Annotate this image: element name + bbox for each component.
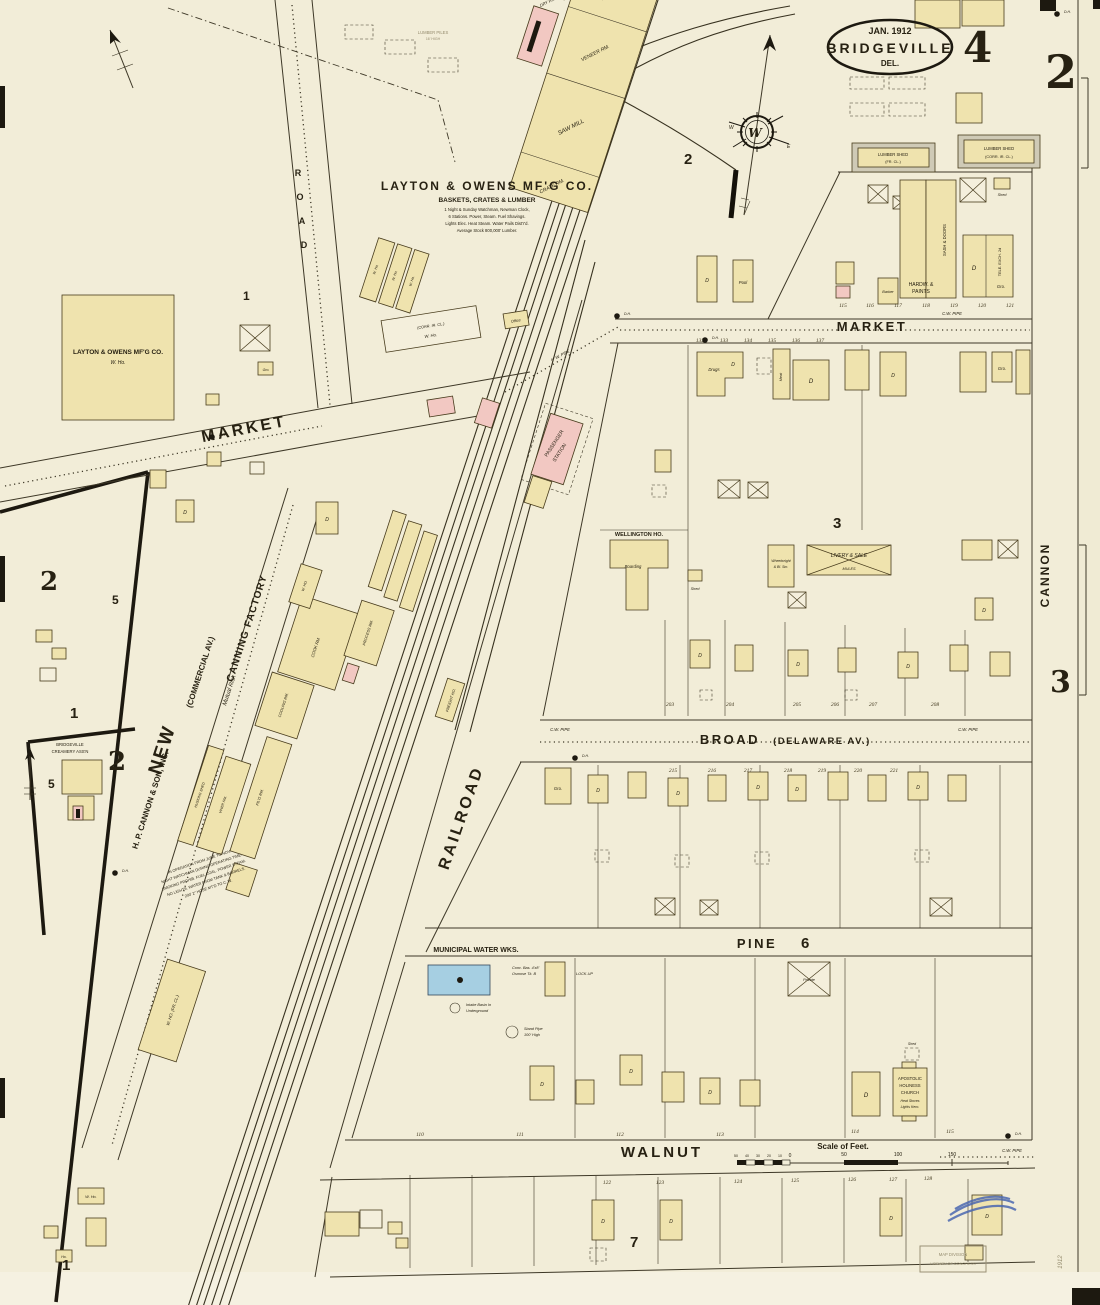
water-pipe-label: C.W. PIPE bbox=[942, 311, 962, 316]
water-note-conc: Conc. Bas. 4'x8' bbox=[512, 966, 539, 970]
lumber-piles-height: 16' HIGH bbox=[426, 37, 441, 41]
lumber-shed-b-label: LUMBER SHED bbox=[984, 146, 1014, 151]
hardware-label-1: HARDW. & bbox=[909, 282, 934, 288]
lot-number: 204 bbox=[726, 701, 735, 708]
shed-label: Shed bbox=[908, 1042, 917, 1046]
lot-number: 127 bbox=[889, 1177, 898, 1183]
lot-number: 110 bbox=[416, 1132, 424, 1138]
dwelling-label: D bbox=[889, 1216, 893, 1222]
lot-number: 133 bbox=[720, 338, 729, 344]
creamery-label-1: BRIDGEVILLE bbox=[56, 742, 84, 747]
map-canvas: LAYTON & OWENS MF'G CO. W. Ho. BASKET RM… bbox=[0, 0, 1100, 1305]
private-stable-label: Private bbox=[803, 978, 815, 982]
lot-number: 207 bbox=[869, 702, 878, 708]
church-label-3: CHURCH bbox=[901, 1090, 919, 1095]
standpipe-label-1: Stand Pipe bbox=[524, 1027, 543, 1031]
lot-number: 220 bbox=[854, 768, 863, 774]
sheet-number: 4 bbox=[963, 23, 992, 72]
lot-number: 122 bbox=[603, 1180, 612, 1186]
lot-number: 134 bbox=[744, 337, 753, 344]
dwelling-label: D bbox=[972, 266, 977, 272]
hardware-label-2: PAINTS bbox=[912, 289, 930, 295]
warehouse-label: W. Ho. bbox=[85, 1195, 96, 1199]
livery-mules-label: MULES bbox=[842, 567, 856, 571]
dwelling-label: D bbox=[864, 1093, 869, 1099]
sash-doors-label: SASH & DOORS bbox=[942, 224, 947, 256]
layton-warehouse-sub: W. Ho. bbox=[110, 360, 125, 366]
street-pine: PINE bbox=[737, 936, 777, 951]
ref-right: 3 bbox=[1050, 665, 1071, 700]
scale-tick: 0 bbox=[789, 1153, 792, 1159]
block-1-west: 1 bbox=[70, 705, 78, 722]
lot-number: 123 bbox=[656, 1180, 665, 1186]
scale-tick: 40 bbox=[745, 1154, 749, 1158]
standpipe-label-2: 100' High bbox=[524, 1033, 540, 1037]
stamp-line-1: MAP DIVISION bbox=[939, 1252, 968, 1257]
dwelling-label: D bbox=[325, 517, 329, 523]
lot-number: 205 bbox=[793, 702, 802, 708]
lumber-shed-a-label: LUMBER SHED bbox=[878, 152, 908, 157]
dwelling-label: D bbox=[731, 362, 735, 368]
municipal-water-works-label: MUNICIPAL WATER WKS. bbox=[433, 947, 518, 954]
scale-tick: 10 bbox=[778, 1154, 782, 1158]
grocery-label: Gro. bbox=[997, 284, 1005, 289]
water-note-intake-1: Intake Basin In bbox=[466, 1003, 491, 1007]
street-road-d: D bbox=[301, 240, 308, 250]
livery-stable-label: LIVERY & SALE bbox=[831, 553, 868, 559]
lumber-shed-b-type: (CORR. IR. CL.) bbox=[985, 155, 1013, 159]
ref-top-right: 2 bbox=[1045, 45, 1077, 99]
block-5-west: 5 bbox=[112, 593, 119, 607]
dwelling-label: D bbox=[676, 791, 680, 797]
paper-margin-bottom bbox=[0, 1272, 1100, 1305]
layton-note-3: Lights Elec. Heat Steam. Water Pails Dis… bbox=[445, 221, 528, 226]
lot-number: 117 bbox=[894, 303, 902, 309]
ref-west-upper: 2 bbox=[40, 567, 58, 597]
sheet-date: JAN. 1912 bbox=[868, 26, 911, 36]
telephone-exchange-label: TELE. EXCH. 2d bbox=[998, 248, 1002, 277]
dwelling-label: D bbox=[756, 785, 760, 791]
sheet-city: BRIDGEVILLE bbox=[826, 40, 953, 56]
hydrant-label: D.H. bbox=[712, 336, 719, 340]
scale-title: Scale of Feet. bbox=[817, 1142, 869, 1151]
layton-note-4: Average Stock 800,000' Lumber. bbox=[457, 228, 518, 233]
grocery-label: Gro. bbox=[998, 366, 1006, 371]
hydrant-label: D.H. bbox=[1015, 1132, 1022, 1136]
lot-number: 217 bbox=[744, 768, 753, 774]
scale-tick: 50 bbox=[841, 1152, 847, 1158]
block-7: 7 bbox=[630, 1234, 638, 1251]
lot-number: 206 bbox=[831, 702, 840, 708]
water-pipe-label: C.W. PIPE bbox=[1002, 1148, 1022, 1153]
boarding-label: Boarding bbox=[625, 564, 642, 569]
grocery-label: Gro. bbox=[554, 786, 562, 791]
hydrant-label: D.H. bbox=[122, 869, 129, 873]
pool-hall-label: Pool bbox=[739, 280, 748, 285]
meat-market-label: Meat bbox=[779, 372, 783, 381]
street-road-a: A bbox=[299, 216, 306, 226]
lot-number: 203 bbox=[666, 702, 675, 708]
layton-warehouse-label: LAYTON & OWENS MF'G CO. bbox=[73, 349, 163, 356]
lot-number: 137 bbox=[816, 338, 825, 344]
lot-number: 112 bbox=[616, 1132, 624, 1138]
hydrant-label: D.H. bbox=[1064, 10, 1071, 14]
block-6: 6 bbox=[801, 935, 809, 952]
dwelling-label: D bbox=[601, 1219, 605, 1225]
block-3: 3 bbox=[833, 515, 841, 532]
layton-name: LAYTON & OWENS MF'G CO. bbox=[381, 179, 593, 193]
dwelling-label: D bbox=[708, 1090, 712, 1096]
scale-tick: 100 bbox=[894, 1152, 903, 1158]
lot-number: 113 bbox=[716, 1132, 724, 1138]
water-pipe-label: C.W. PIPE bbox=[550, 727, 570, 732]
lot-number: 135 bbox=[768, 338, 777, 344]
lot-number: 114 bbox=[851, 1128, 859, 1135]
sanborn-map-sheet: LAYTON & OWENS MF'G CO. W. Ho. BASKET RM… bbox=[0, 0, 1100, 1305]
lot-number: 116 bbox=[866, 303, 874, 309]
lockup-label: LOCK-UP bbox=[576, 972, 593, 976]
lot-number: 218 bbox=[784, 768, 793, 774]
ref-west-creamery: 2 bbox=[108, 747, 126, 777]
creamery-label-2: CREAMERY ASS'N bbox=[52, 749, 89, 754]
dwelling-label: D bbox=[596, 788, 600, 794]
dwelling-label: D bbox=[916, 785, 920, 791]
lot-number: 119 bbox=[950, 303, 958, 309]
hydrant-label: D.H. bbox=[219, 433, 226, 437]
layton-sub: BASKETS, CRATES & LUMBER bbox=[438, 197, 535, 204]
lot-number: 124 bbox=[734, 1178, 743, 1185]
lot-number: 115 bbox=[839, 303, 847, 309]
lot-number: 120 bbox=[978, 303, 987, 309]
church-note-1: Heat Stoves bbox=[900, 1099, 919, 1103]
lot-number: 118 bbox=[922, 303, 930, 309]
dwelling-label: D bbox=[809, 379, 814, 385]
street-road-r: R bbox=[295, 168, 302, 178]
paper-margin-right bbox=[1078, 0, 1100, 1305]
scale-tick: 150 bbox=[948, 1152, 957, 1158]
street-broad: BROAD bbox=[700, 732, 760, 747]
block-2-compass: 2 bbox=[684, 151, 692, 168]
wellington-hotel-label: WELLINGTON HO. bbox=[615, 532, 664, 538]
dwelling-label: D bbox=[906, 664, 910, 670]
layton-note-1: 1 Night & Sunday Watchman, Newman Clock, bbox=[444, 207, 529, 212]
water-pipe-label: C.W. PIPE bbox=[958, 727, 978, 732]
lot-number: 221 bbox=[890, 768, 899, 774]
wheelwright-label-1: Wheelwright bbox=[771, 559, 791, 563]
lot-number: 219 bbox=[818, 768, 827, 774]
church-note-2: Lights Kero. bbox=[901, 1105, 920, 1109]
water-note-intake-2: Underground bbox=[466, 1009, 489, 1013]
street-walnut: WALNUT bbox=[621, 1144, 703, 1161]
drug-store-label: Drugs bbox=[708, 367, 720, 372]
block-5-creamery: 5 bbox=[48, 777, 55, 791]
stamp-line-2: LIBRARY OF CONGRESS bbox=[930, 1262, 976, 1266]
margin-annotation-year: 1912 bbox=[1058, 1255, 1064, 1269]
lumber-shed-a-type: (FR. CL.) bbox=[885, 160, 901, 164]
dwelling-label: D bbox=[982, 608, 986, 614]
lot-number: 136 bbox=[792, 338, 801, 344]
barber-label: Barber bbox=[882, 290, 894, 294]
dwelling-label: D bbox=[698, 653, 702, 659]
scale-tick: 20 bbox=[767, 1154, 771, 1158]
church-label-1: APOSTOLIC bbox=[898, 1076, 922, 1081]
sheet-state: DEL. bbox=[881, 59, 899, 68]
layton-warehouse: LAYTON & OWENS MF'G CO. W. Ho. bbox=[62, 295, 174, 420]
dwelling-label: D bbox=[540, 1082, 544, 1088]
street-cannon: CANNON bbox=[1038, 543, 1052, 608]
grocery-label: Gro. bbox=[263, 368, 270, 372]
hydrant-label: D.H. bbox=[582, 754, 589, 758]
shed-label: Shed bbox=[691, 587, 701, 591]
dwelling-label: D bbox=[796, 662, 800, 668]
street-road-o: O bbox=[296, 192, 303, 202]
compass-monogram: W bbox=[748, 126, 763, 140]
lot-number: 121 bbox=[1006, 303, 1015, 309]
lot-number: 111 bbox=[516, 1132, 524, 1138]
lot-number: 125 bbox=[791, 1178, 800, 1184]
block-1-bottom: 1 bbox=[62, 1257, 70, 1274]
scale-tick: 50 bbox=[734, 1154, 738, 1158]
dwelling-label: D bbox=[795, 787, 799, 793]
layton-note-2: 6 Stations. Power, Steam. Fuel Shavings. bbox=[448, 214, 525, 219]
lot-number: 216 bbox=[708, 768, 717, 774]
block-1-top: 1 bbox=[243, 289, 250, 303]
street-market-right: MARKET bbox=[837, 319, 908, 334]
lumber-piles-label: LUMBER PILES bbox=[418, 30, 449, 35]
hydrant-label: D.H. bbox=[624, 312, 631, 316]
scale-tick: 30 bbox=[756, 1154, 760, 1158]
lot-number: 208 bbox=[931, 702, 940, 708]
dwelling-label: D bbox=[669, 1219, 673, 1225]
lot-number: 128 bbox=[924, 1176, 933, 1182]
dwelling-label: D bbox=[891, 373, 895, 379]
lot-number: 126 bbox=[848, 1177, 857, 1183]
lot-number: 115 bbox=[946, 1129, 954, 1135]
wheelwright-label-2: & Bl. Sm. bbox=[774, 565, 789, 569]
dwelling-label: D bbox=[183, 510, 187, 516]
shed-label: Shed bbox=[998, 193, 1008, 197]
dwelling-label: D bbox=[629, 1069, 633, 1075]
dwelling-label: D bbox=[985, 1214, 989, 1220]
lot-number: 215 bbox=[669, 768, 678, 774]
dwelling-label: D bbox=[705, 278, 709, 284]
street-broad-paren: (DELAWARE AV.) bbox=[773, 736, 871, 747]
church-label-2: HOLINESS bbox=[899, 1083, 920, 1088]
water-note-osmose: Osmose Tk. B bbox=[512, 972, 537, 976]
